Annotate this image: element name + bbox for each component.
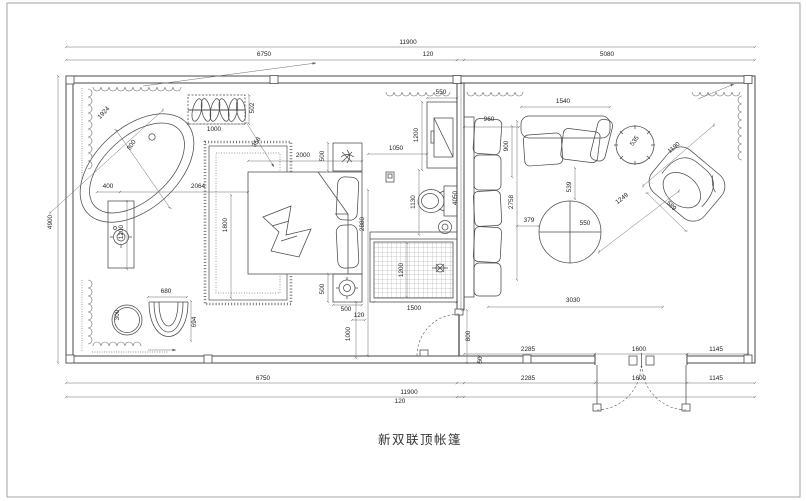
dim-label: 1540 [556, 98, 571, 105]
floor-plan-drawing: 1190067501205080490022851600114567502285… [0, 0, 807, 501]
dim-label: 2000 [296, 152, 311, 159]
dim-label: 539 [566, 181, 573, 192]
scallop-chain [467, 92, 523, 96]
dim-label: 680 [161, 288, 172, 295]
walls [66, 76, 755, 366]
nightstand-bottom [333, 274, 362, 302]
scallop-chain [692, 92, 740, 96]
dim-label: 120 [395, 398, 406, 405]
dim-label: 2758 [508, 194, 515, 209]
dim-label: 1000 [345, 326, 352, 341]
dim-label: 1050 [389, 145, 404, 152]
bathtub-drain-icon [149, 134, 155, 140]
dim-label: 400 [103, 183, 114, 190]
shower-area [370, 232, 457, 302]
dim-label: 500 [341, 306, 352, 313]
dim-label: 500 [319, 150, 326, 161]
drawing-title: 新双联顶帐篷 [330, 429, 510, 448]
dim-label: 1130 [410, 195, 417, 209]
dim-label: 1200 [398, 262, 405, 277]
dim-label: 800 [465, 330, 472, 341]
dim-label: 379 [524, 217, 535, 224]
coffee-table [539, 201, 601, 263]
entry-door-opening [595, 354, 687, 365]
dim-label: 1924 [96, 105, 111, 120]
dim-label: 6750 [256, 375, 271, 382]
sofa-two-seat [521, 116, 614, 166]
bathroom-door [417, 309, 463, 356]
scallop-chain [93, 87, 181, 91]
dim-label: 960 [484, 116, 495, 123]
dim-label: 1145 [709, 346, 723, 353]
dim-label: 502 [249, 102, 256, 113]
scallop-chain [88, 280, 92, 344]
dim-label: 1190 [667, 140, 682, 154]
dim-label: 4050 [452, 190, 459, 205]
dim-label: 800 [126, 138, 138, 151]
wardrobe [188, 95, 247, 124]
dim-label: 694 [191, 316, 198, 327]
bed [248, 172, 362, 274]
dim-label: 900 [503, 140, 510, 151]
dim-label: 500 [319, 283, 326, 294]
dim-label: 1600 [632, 375, 647, 382]
dim-label: 2285 [521, 346, 536, 353]
dim-label: 11900 [400, 389, 418, 396]
dim-label: 1200 [413, 127, 420, 142]
dim-label: 1000 [207, 126, 222, 133]
scallop-chain [88, 89, 92, 169]
toilet-paper-holder [439, 221, 452, 234]
dim-label: 1600 [632, 346, 647, 353]
bathtub [60, 93, 214, 244]
dim-label: 120 [354, 312, 365, 319]
dim-label: 2285 [521, 375, 536, 382]
scallop-chain [738, 96, 742, 160]
dim-label: 550 [436, 89, 447, 96]
dim-label: 2880 [359, 216, 366, 231]
dim-label: 11900 [399, 39, 417, 46]
dim-label: 300 [114, 309, 121, 320]
scallop-chain [93, 342, 141, 346]
dim-label: 5080 [600, 51, 615, 58]
dim-label: 550 [580, 220, 591, 227]
dim-label: 1500 [407, 305, 422, 312]
dim-label: 50 [477, 356, 484, 364]
dimension-lines [50, 47, 755, 397]
l-sofa [464, 117, 502, 297]
nightstand-top [333, 143, 362, 171]
dim-label: 3030 [566, 297, 581, 304]
floor-plan-page: 1190067501205080490022851600114567502285… [0, 0, 807, 501]
lounge-chair [149, 302, 188, 337]
dim-label: 6750 [257, 51, 272, 58]
dim-label: 2064 [191, 183, 206, 190]
dim-label: 1145 [709, 375, 723, 382]
wall-columns [66, 76, 752, 364]
tv-cabinet [427, 102, 457, 168]
dim-label: 1800 [222, 217, 229, 232]
dim-label: 120 [423, 51, 434, 58]
lamp-icon [339, 280, 355, 296]
armchair [643, 141, 731, 228]
dim-label: 535 [629, 134, 641, 147]
dim-label: 1200 [118, 224, 125, 239]
dim-label: 4900 [47, 214, 54, 229]
wall-switch [386, 172, 394, 182]
dim-label: 1249 [614, 191, 630, 206]
